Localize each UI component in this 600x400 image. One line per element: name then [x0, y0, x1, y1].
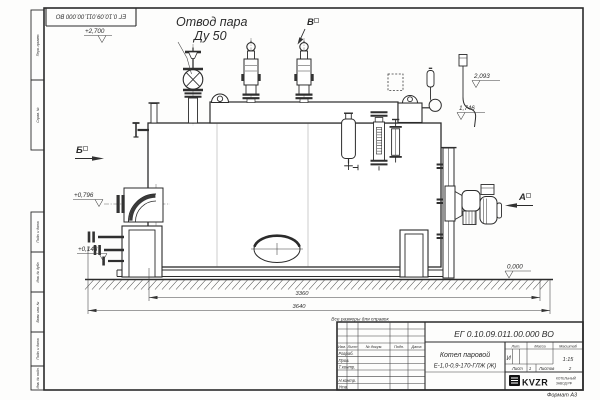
drum-end-box — [398, 96, 422, 123]
dim-inner-label: 3360 — [296, 291, 310, 297]
kvzr-logo: KVZR КОТЕЛЬНЫЙ ЗАВОД РФ — [509, 375, 577, 388]
title-block: ЕГ 0.10.09.011.00.000 ВО Котел паровой Е… — [337, 322, 583, 390]
drain-tap-icon — [133, 123, 150, 137]
steam-outlet-label-line2: Ду 50 — [192, 29, 227, 43]
support-leg-left — [122, 226, 162, 277]
logo-caption-1: КОТЕЛЬНЫЙ — [556, 377, 577, 381]
row-utv: Утв. — [339, 385, 349, 390]
frame-stamp-label: Взам. инв. № — [36, 301, 40, 322]
steam-outlet-label-line1: Отвод пара — [176, 15, 248, 29]
format-label: Формат А3 — [547, 393, 578, 399]
row-nkontr: Н.контр. — [339, 378, 357, 383]
frame-stamp-label: Инв. № подл. — [36, 367, 40, 388]
drum-top-strip — [210, 102, 398, 123]
hidden-component-outline — [388, 74, 403, 91]
frame-stamp-column: Перв. примен. Справ. № Подп. и дата Инв.… — [31, 10, 44, 390]
col-list: Лист — [347, 345, 358, 349]
scale-value: 1:15 — [563, 357, 575, 363]
steam-outlet-callout: Отвод пара Ду 50 — [176, 15, 248, 74]
col-podp: Подп. — [394, 345, 404, 349]
elevation-mark-zero: 0,000 — [505, 264, 531, 279]
dim-overall-label: 3640 — [293, 304, 307, 310]
elevation-mark-top: +2,700 — [84, 28, 112, 43]
support-leg-right — [400, 230, 428, 277]
col-izm: Изм. — [338, 345, 346, 349]
sheets-value: 2 — [568, 366, 572, 371]
view-v-label: В — [307, 17, 314, 28]
burner-assembly — [445, 185, 502, 225]
frame-stamp-label: Перв. примен. — [36, 34, 40, 57]
elevation-mark-right-lower: 1,746 — [457, 105, 485, 120]
scale-header: Масштаб — [559, 345, 578, 349]
vent-stub-pipe — [149, 103, 160, 123]
frame-stamp-label: Справ. № — [36, 107, 40, 123]
row-prov: Пров. — [339, 358, 350, 363]
col-data: Дата — [410, 345, 421, 349]
sheet-value: 1 — [529, 366, 531, 371]
pressure-gauge-siphon — [422, 68, 441, 111]
elevation-mark-left-upper: +0,796 — [73, 192, 103, 207]
view-b-label: Б — [76, 145, 83, 156]
ground-hatch — [85, 280, 549, 290]
view-marker-b: Б — [75, 145, 104, 161]
product-name: Котел паровой — [440, 351, 490, 359]
lifting-lug — [212, 94, 229, 103]
mass-header: Масса — [534, 345, 545, 349]
frame-stamp-label: Инв. № дубл. — [36, 262, 40, 283]
col-docum: № докум. — [366, 345, 383, 349]
frame-stamp-label: Подп. и дата — [36, 338, 40, 359]
lit-header: Лит. — [511, 345, 521, 349]
logo-text: KVZR — [522, 378, 548, 388]
frame-stamp-label: Подп. и дата — [36, 221, 40, 242]
doc-number-top: ЕГ 0.10.09.011.00.000 ВО — [55, 13, 126, 19]
elevation-label: 2,093 — [473, 73, 490, 80]
product-type: Е-1,0-0,9-170-ГЛЖ (Ж) — [434, 364, 497, 370]
sheets-label: Листов — [538, 366, 555, 371]
safety-valve-1 — [241, 38, 260, 103]
row-tkontr: Т.контр. — [339, 365, 356, 370]
logo-caption-2: ЗАВОД РФ — [556, 382, 573, 386]
blowdown-elbow — [104, 184, 170, 228]
elevation-mark-right-upper: 2,093 — [472, 73, 500, 88]
elevation-label: +0,143 — [78, 246, 98, 253]
view-marker-v: В — [298, 17, 319, 45]
view-marker-a: А — [505, 192, 533, 208]
doc-number-top-box: ЕГ 0.10.09.011.00.000 ВО — [46, 8, 136, 26]
ground — [85, 280, 553, 290]
rear-sensor-pipe — [459, 55, 476, 128]
view-a-label: А — [518, 192, 526, 203]
elevation-label: +0,796 — [74, 192, 94, 199]
elevation-label: 1,746 — [459, 105, 475, 112]
drawing-sheet: 3360 3640 Все размеры для справок +2,700… — [0, 0, 600, 400]
title-doc-number: ЕГ 0.10.09.011.00.000 ВО — [454, 329, 554, 339]
elevation-label: 0,000 — [507, 264, 523, 271]
row-razrab: Разраб. — [339, 351, 354, 356]
safety-valve-2 — [294, 38, 313, 103]
sheet-label: Лист — [511, 366, 523, 371]
lit-value: И — [507, 356, 512, 362]
elevation-label: +2,700 — [85, 28, 105, 35]
boiler-general-view-drawing: 3360 3640 Все размеры для справок +2,700… — [0, 0, 600, 400]
